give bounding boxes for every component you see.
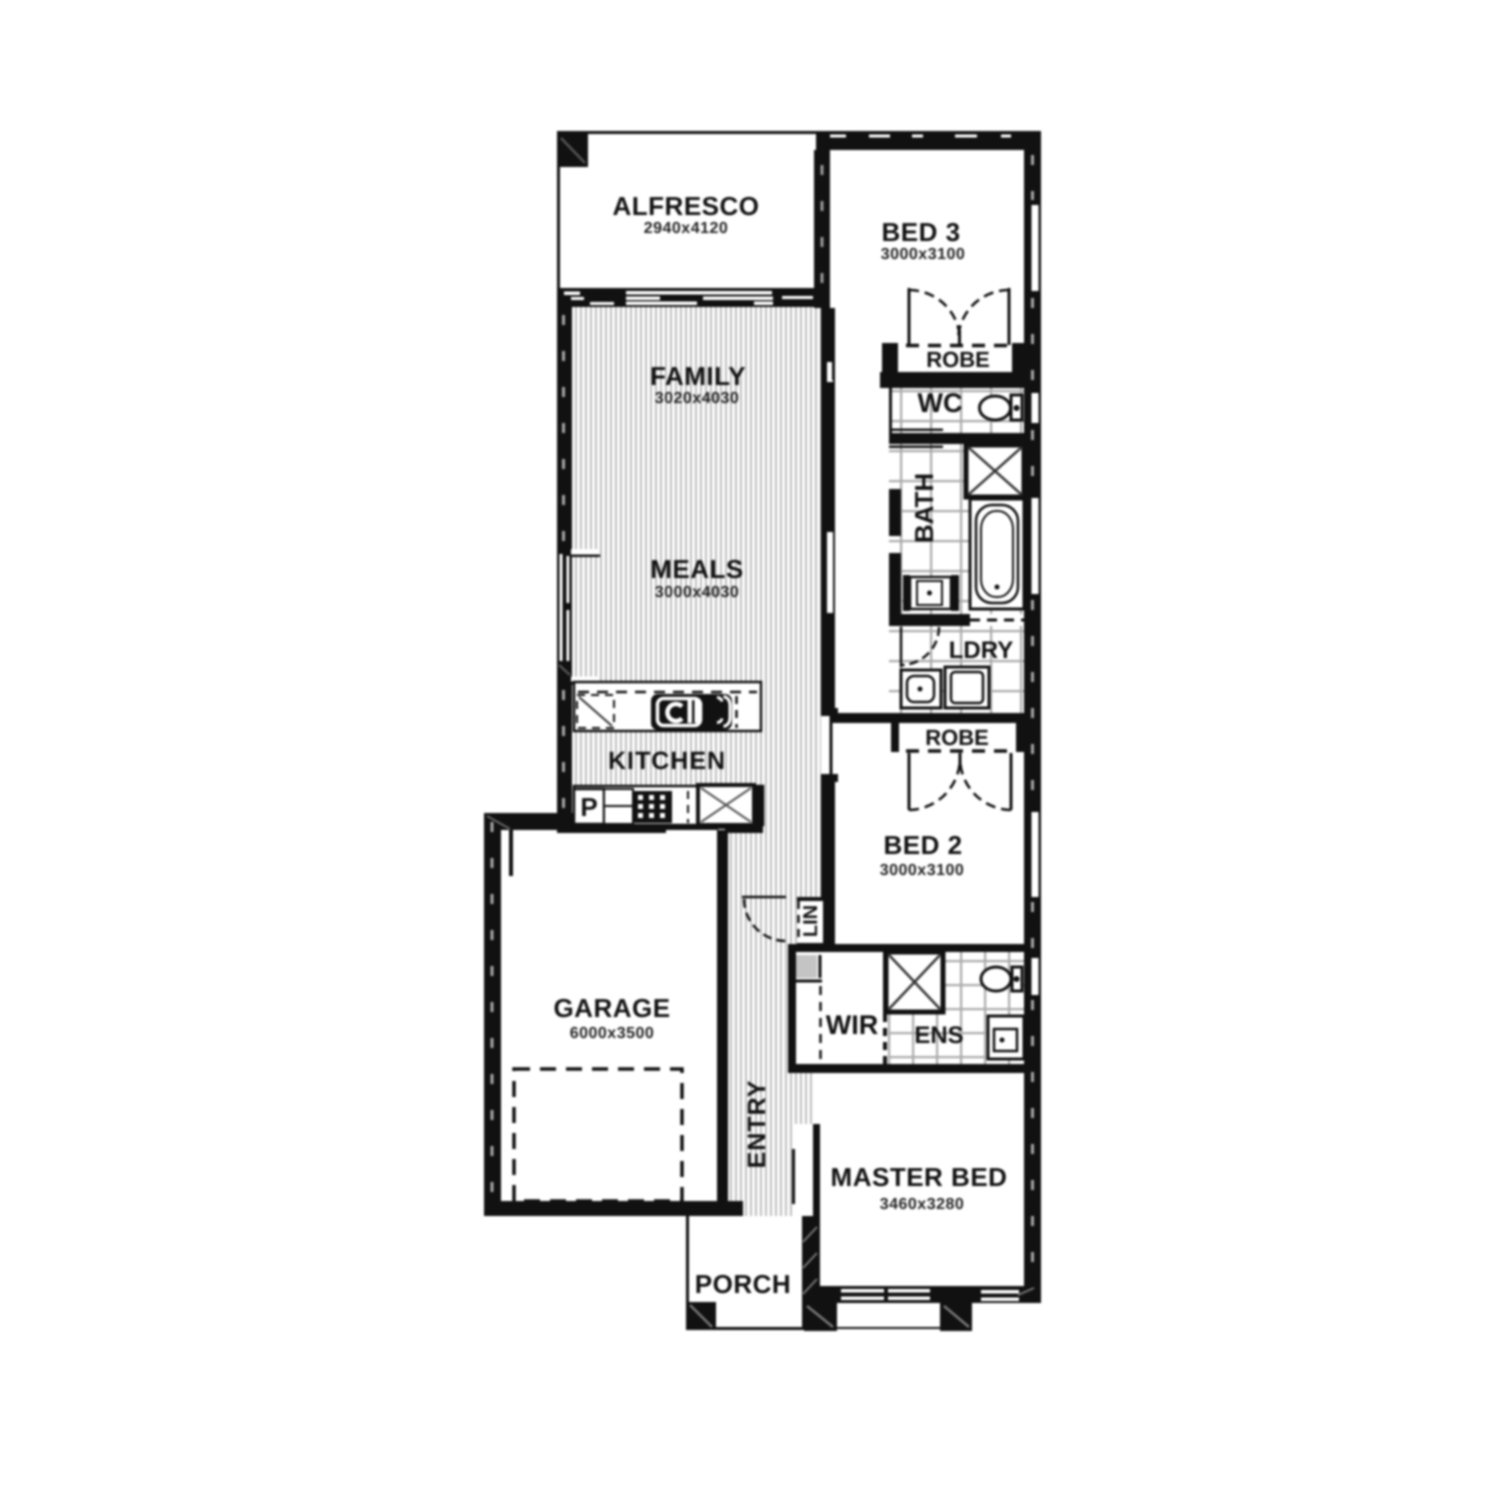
svg-text:ROBE: ROBE [925, 725, 989, 750]
svg-text:WC: WC [918, 388, 963, 418]
svg-text:ROBE: ROBE [926, 347, 990, 372]
svg-text:BED 3: BED 3 [881, 217, 960, 247]
svg-text:BATH: BATH [909, 473, 939, 543]
svg-text:MASTER BED: MASTER BED [831, 1162, 1008, 1192]
svg-text:LIN: LIN [800, 905, 822, 937]
svg-text:KITCHEN: KITCHEN [608, 747, 726, 775]
svg-text:3000x3100: 3000x3100 [880, 862, 965, 879]
svg-text:WIR: WIR [826, 1010, 878, 1040]
svg-text:PORCH: PORCH [695, 1269, 791, 1299]
svg-text:3460x3280: 3460x3280 [880, 1196, 965, 1213]
svg-text:FAMILY: FAMILY [650, 361, 746, 391]
svg-text:3000x3100: 3000x3100 [881, 246, 966, 263]
svg-text:3020x4030: 3020x4030 [655, 390, 740, 407]
svg-text:2940x4120: 2940x4120 [644, 220, 729, 237]
svg-text:3000x4030: 3000x4030 [655, 584, 740, 601]
svg-text:ALFRESCO: ALFRESCO [613, 191, 760, 221]
svg-text:6000x3500: 6000x3500 [570, 1025, 655, 1042]
svg-text:LDRY: LDRY [949, 637, 1013, 664]
svg-text:BED 2: BED 2 [883, 830, 962, 860]
svg-text:ENS: ENS [914, 1022, 963, 1049]
svg-text:GARAGE: GARAGE [553, 993, 670, 1023]
svg-text:P: P [580, 792, 597, 822]
svg-text:MEALS: MEALS [650, 554, 744, 584]
svg-text:ENTRY: ENTRY [743, 1080, 771, 1169]
